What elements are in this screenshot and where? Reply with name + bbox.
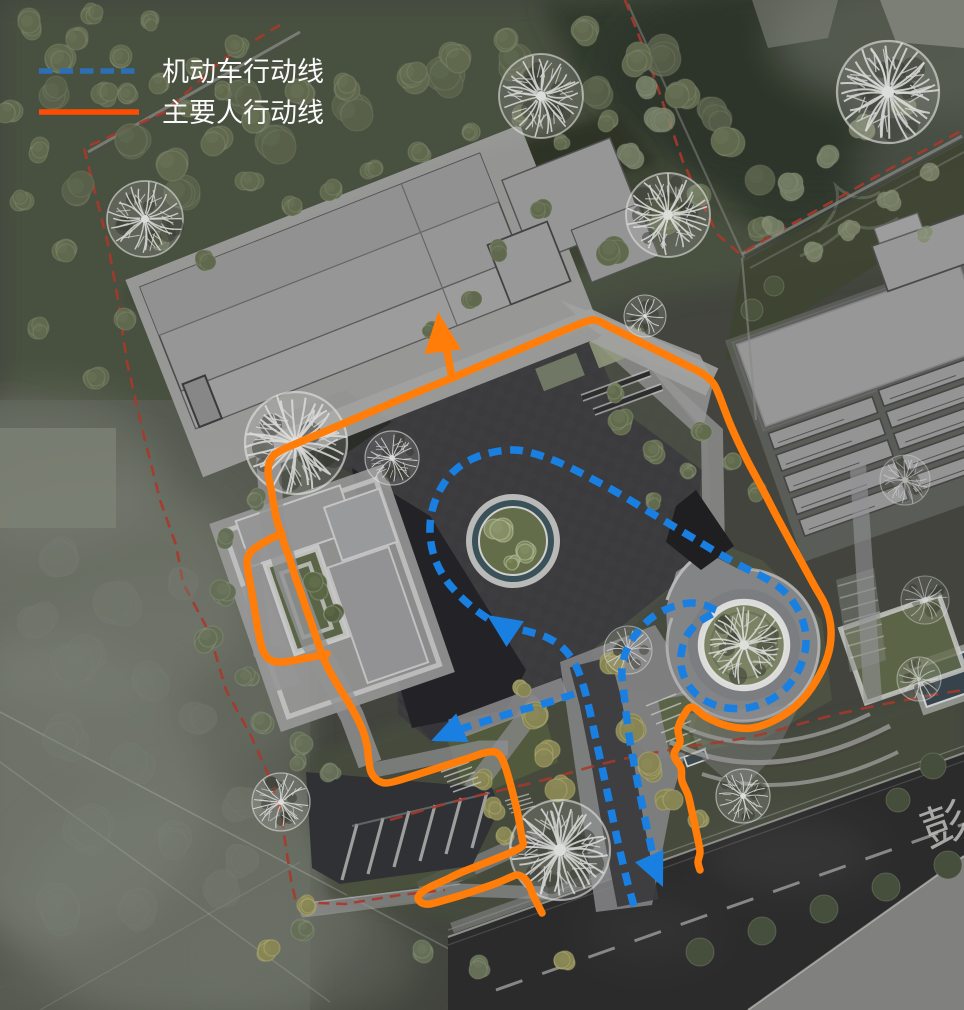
svg-text:主要人行动线: 主要人行动线 (162, 98, 324, 128)
svg-text:机动车行动线: 机动车行动线 (162, 57, 324, 87)
